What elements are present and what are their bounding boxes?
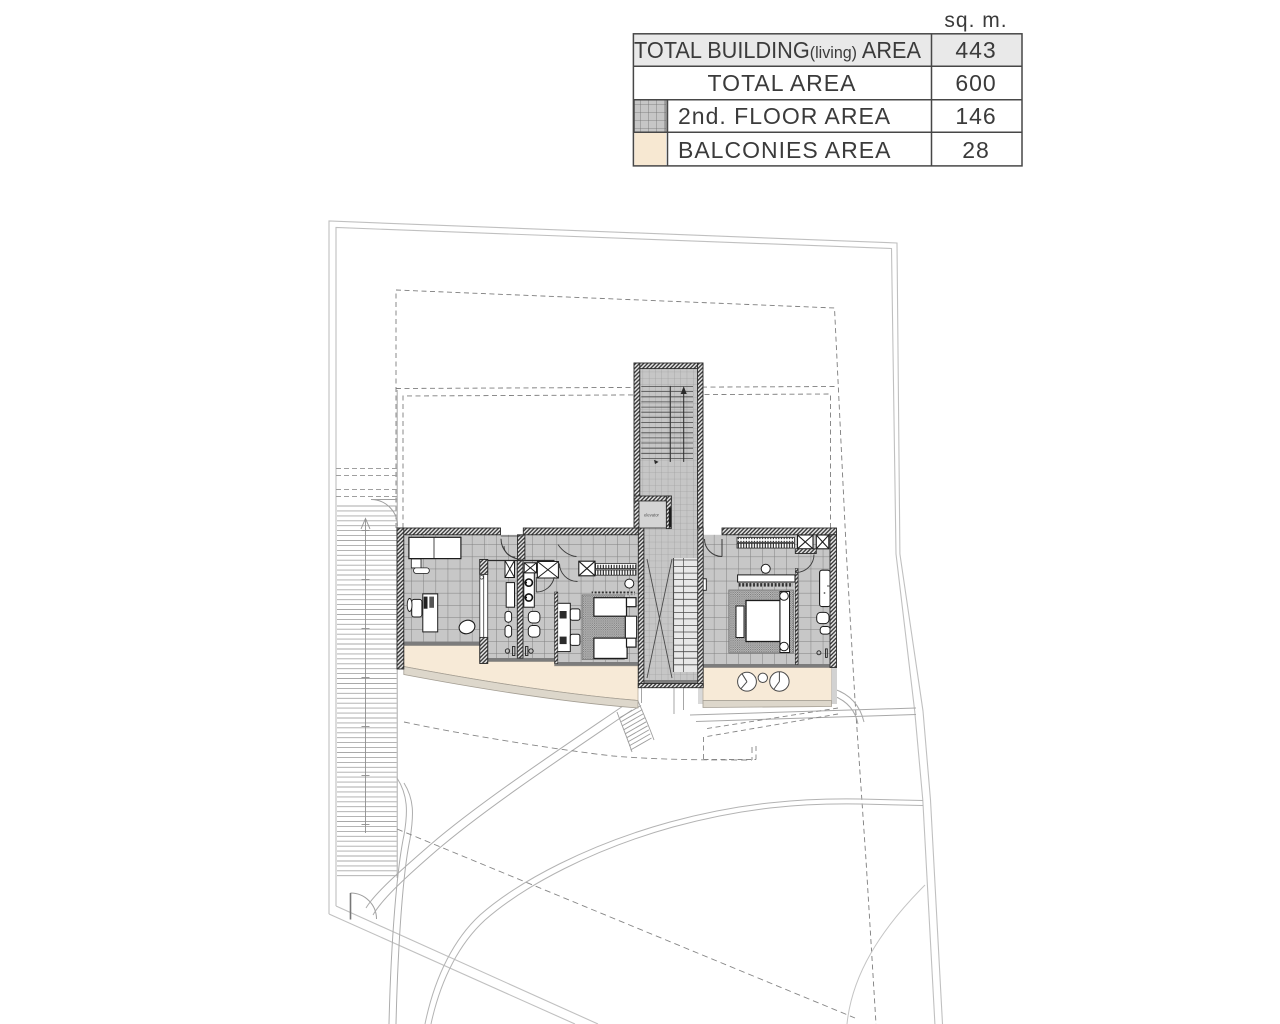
- svg-text:sq. m.: sq. m.: [944, 9, 1007, 32]
- svg-text:elevator: elevator: [644, 513, 660, 518]
- svg-text:TOTAL AREA: TOTAL AREA: [708, 70, 857, 96]
- svg-text:2nd. FLOOR AREA: 2nd. FLOOR AREA: [678, 103, 891, 129]
- svg-text:28: 28: [962, 137, 990, 163]
- svg-text:600: 600: [955, 70, 996, 96]
- svg-text:443: 443: [955, 37, 996, 63]
- svg-text:TOTAL BUILDING(living) AREA: TOTAL BUILDING(living) AREA: [634, 37, 922, 63]
- svg-text:146: 146: [955, 103, 996, 129]
- svg-text:BALCONIES AREA: BALCONIES AREA: [678, 137, 891, 163]
